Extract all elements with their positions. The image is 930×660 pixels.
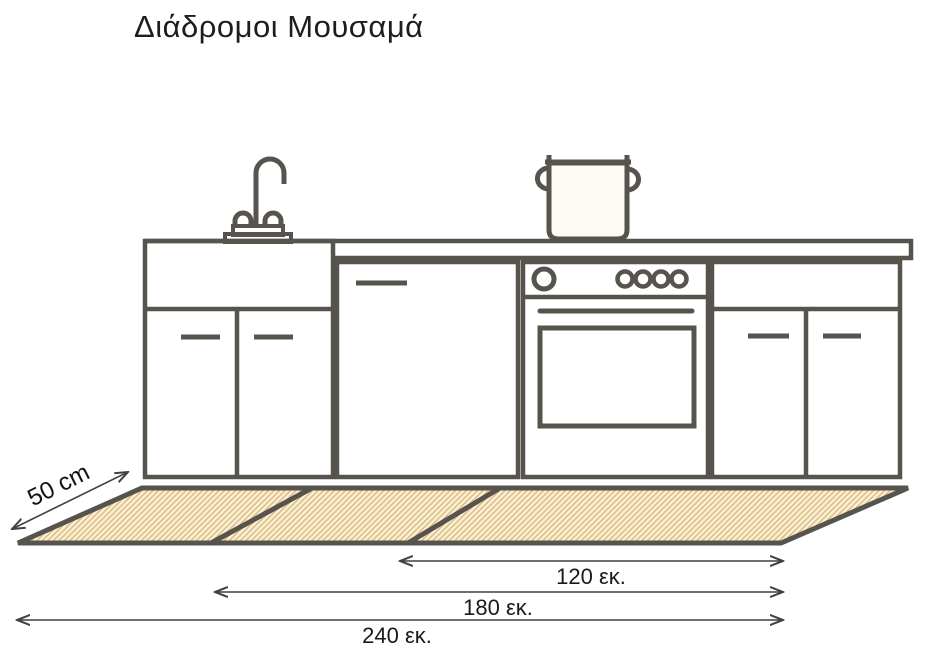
kitchen-illustration: [145, 155, 911, 477]
oven-knob-icon: [654, 272, 669, 287]
dim-label-120: 120 εκ.: [556, 564, 626, 589]
pot-icon: [537, 155, 638, 239]
dim-label-180: 180 εκ.: [463, 595, 533, 620]
faucet-icon: [225, 159, 291, 242]
diagram-canvas: Διάδρομοι Μουσαμά: [0, 0, 930, 660]
oven-box: [523, 262, 708, 477]
mat-surface: [18, 488, 908, 543]
dim-label-240: 240 εκ.: [362, 623, 432, 648]
kitchen-diagram: 50 cm 120 εκ. 180 εκ. 240 εκ.: [0, 0, 930, 660]
mat-depth-label: 50 cm: [23, 459, 94, 512]
floor-mat: [18, 488, 908, 543]
oven-knob-icon: [636, 272, 651, 287]
dishwasher: [337, 262, 518, 477]
oven-knob-icon: [672, 272, 687, 287]
oven-window: [540, 328, 694, 426]
pot-body: [549, 163, 627, 239]
oven: [523, 262, 708, 477]
dishwasher-box: [337, 262, 518, 477]
sink-cabinet: [145, 241, 333, 477]
oven-main-knob-icon: [534, 269, 554, 289]
right-cabinet: [712, 262, 900, 477]
oven-knob-icon: [618, 272, 633, 287]
